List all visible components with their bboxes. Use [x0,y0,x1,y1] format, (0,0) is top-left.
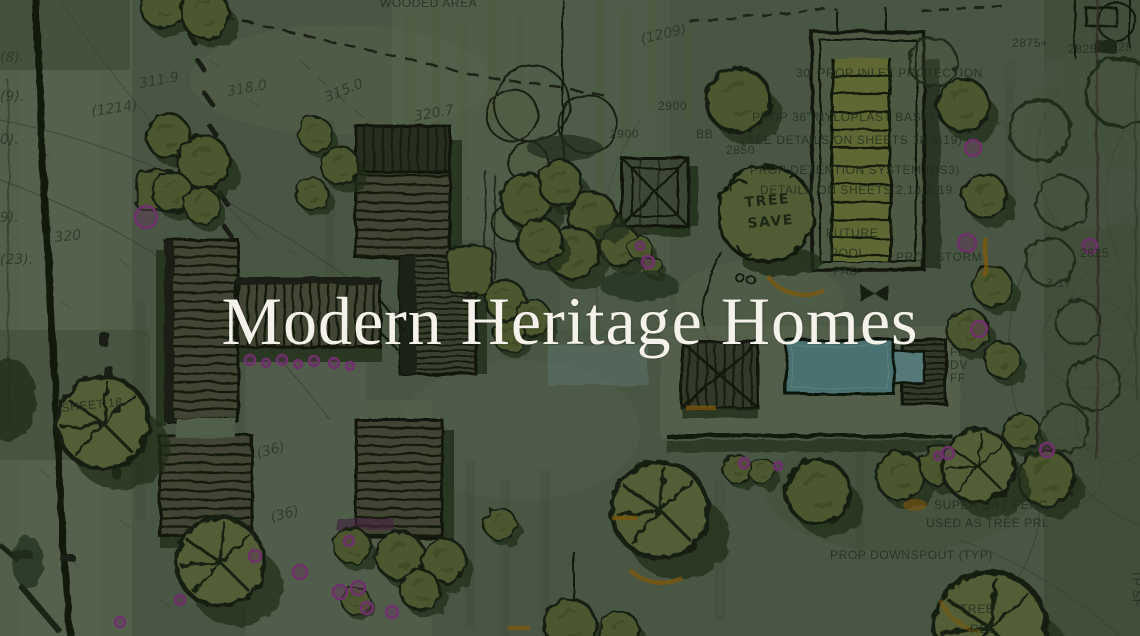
plan-label: 2900 [610,127,639,141]
plan-label: PROP DOWNSPOUT (TYP) [830,548,993,562]
plan-label: REE [970,622,996,636]
plan-label: BB [696,127,713,141]
plan-label: FUTURE [826,226,878,240]
plan-label: FL [950,345,965,359]
plan-label: (23). [0,252,33,268]
plan-label: PROP DETENTION SYSTEM (DS3) [750,163,960,177]
plan-label: WOODED AREA [380,0,477,10]
plan-label: 3.17 [1046,276,1072,290]
plan-label: DV [950,358,968,372]
plan-label: 2825 [1080,246,1109,260]
plan-label: 28 [1118,40,1133,54]
plan-label: (9). [0,89,24,105]
plan-label: PROP STORM [896,250,982,264]
plan-label: PAD [833,264,859,278]
plan-label: POOL [830,246,866,260]
plan-label: (8). [0,50,24,66]
plan-label: (SEE DETAILS ON SHEETS 18 & 19) [742,133,962,147]
plan-label: 2875+ [1012,36,1049,50]
hero-section: WOODED AREA (1209) (1214) 311.9 318.0 31… [0,0,1140,636]
plan-label: 320 [54,227,82,246]
plan-label: FF [950,371,966,385]
plan-label: 2900 [658,99,687,113]
plan-label: 0). [0,132,19,148]
site-plan-sketch: WOODED AREA (1209) (1214) 311.9 318.0 31… [0,0,1140,636]
plan-label: SUPER SILT FENC [934,498,1048,512]
plan-label: PROP 36" NYLOPLAST BASIN [752,110,934,124]
plan-label: 2825 [1068,42,1097,56]
plan-label: TREE [960,602,994,616]
plan-label: TP SF [1130,570,1140,607]
plan-label: USED AS TREE PRL [926,516,1049,530]
plan-label: 30' PROP INLET PROTECTION [796,66,983,80]
plan-label: 9). [0,210,19,226]
